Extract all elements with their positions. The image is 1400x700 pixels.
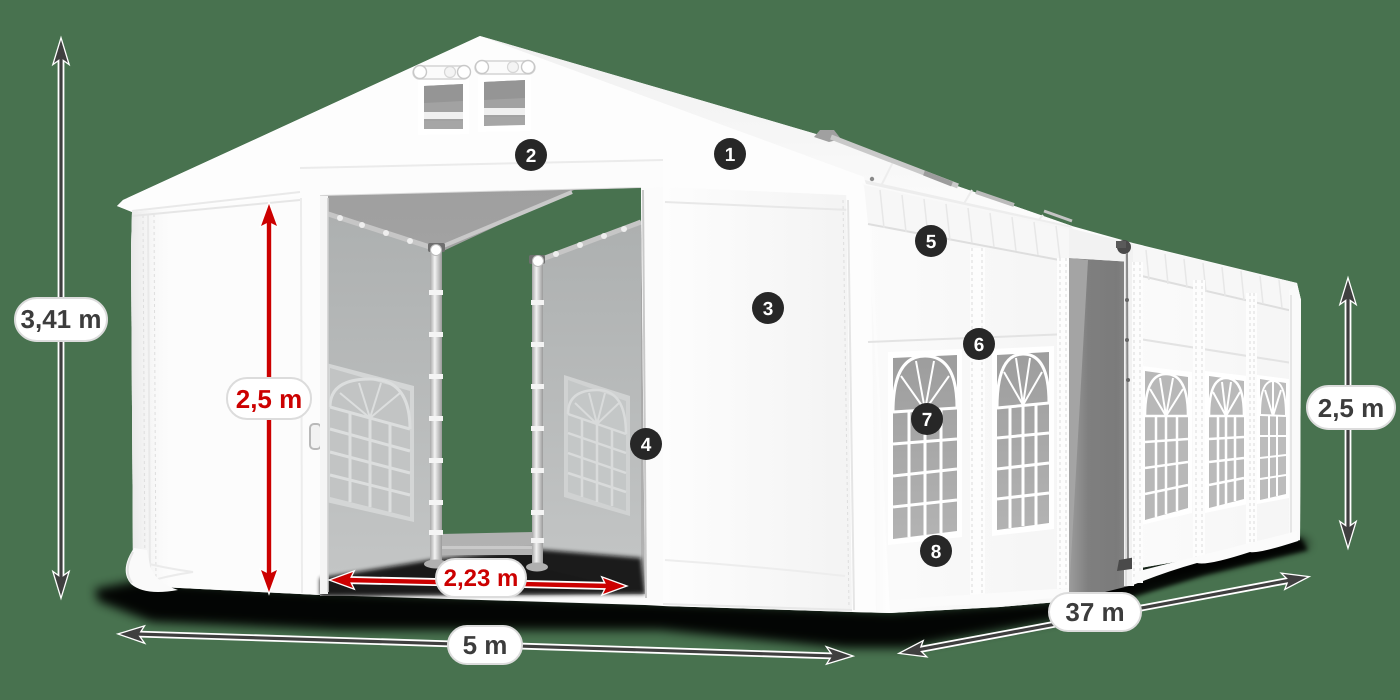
svg-text:3: 3 bbox=[763, 299, 774, 320]
svg-text:5: 5 bbox=[926, 232, 937, 253]
svg-text:1: 1 bbox=[725, 145, 736, 166]
svg-text:5 m: 5 m bbox=[463, 630, 508, 660]
svg-text:2,23 m: 2,23 m bbox=[444, 565, 519, 592]
svg-text:3,41 m: 3,41 m bbox=[21, 304, 102, 334]
svg-text:6: 6 bbox=[974, 335, 985, 356]
svg-text:2,5 m: 2,5 m bbox=[1318, 393, 1385, 423]
svg-text:4: 4 bbox=[641, 435, 652, 456]
svg-text:7: 7 bbox=[922, 410, 933, 431]
svg-text:8: 8 bbox=[931, 542, 942, 563]
svg-text:2,5 m: 2,5 m bbox=[236, 384, 303, 414]
svg-text:2: 2 bbox=[526, 146, 537, 167]
svg-text:37 m: 37 m bbox=[1065, 597, 1124, 627]
